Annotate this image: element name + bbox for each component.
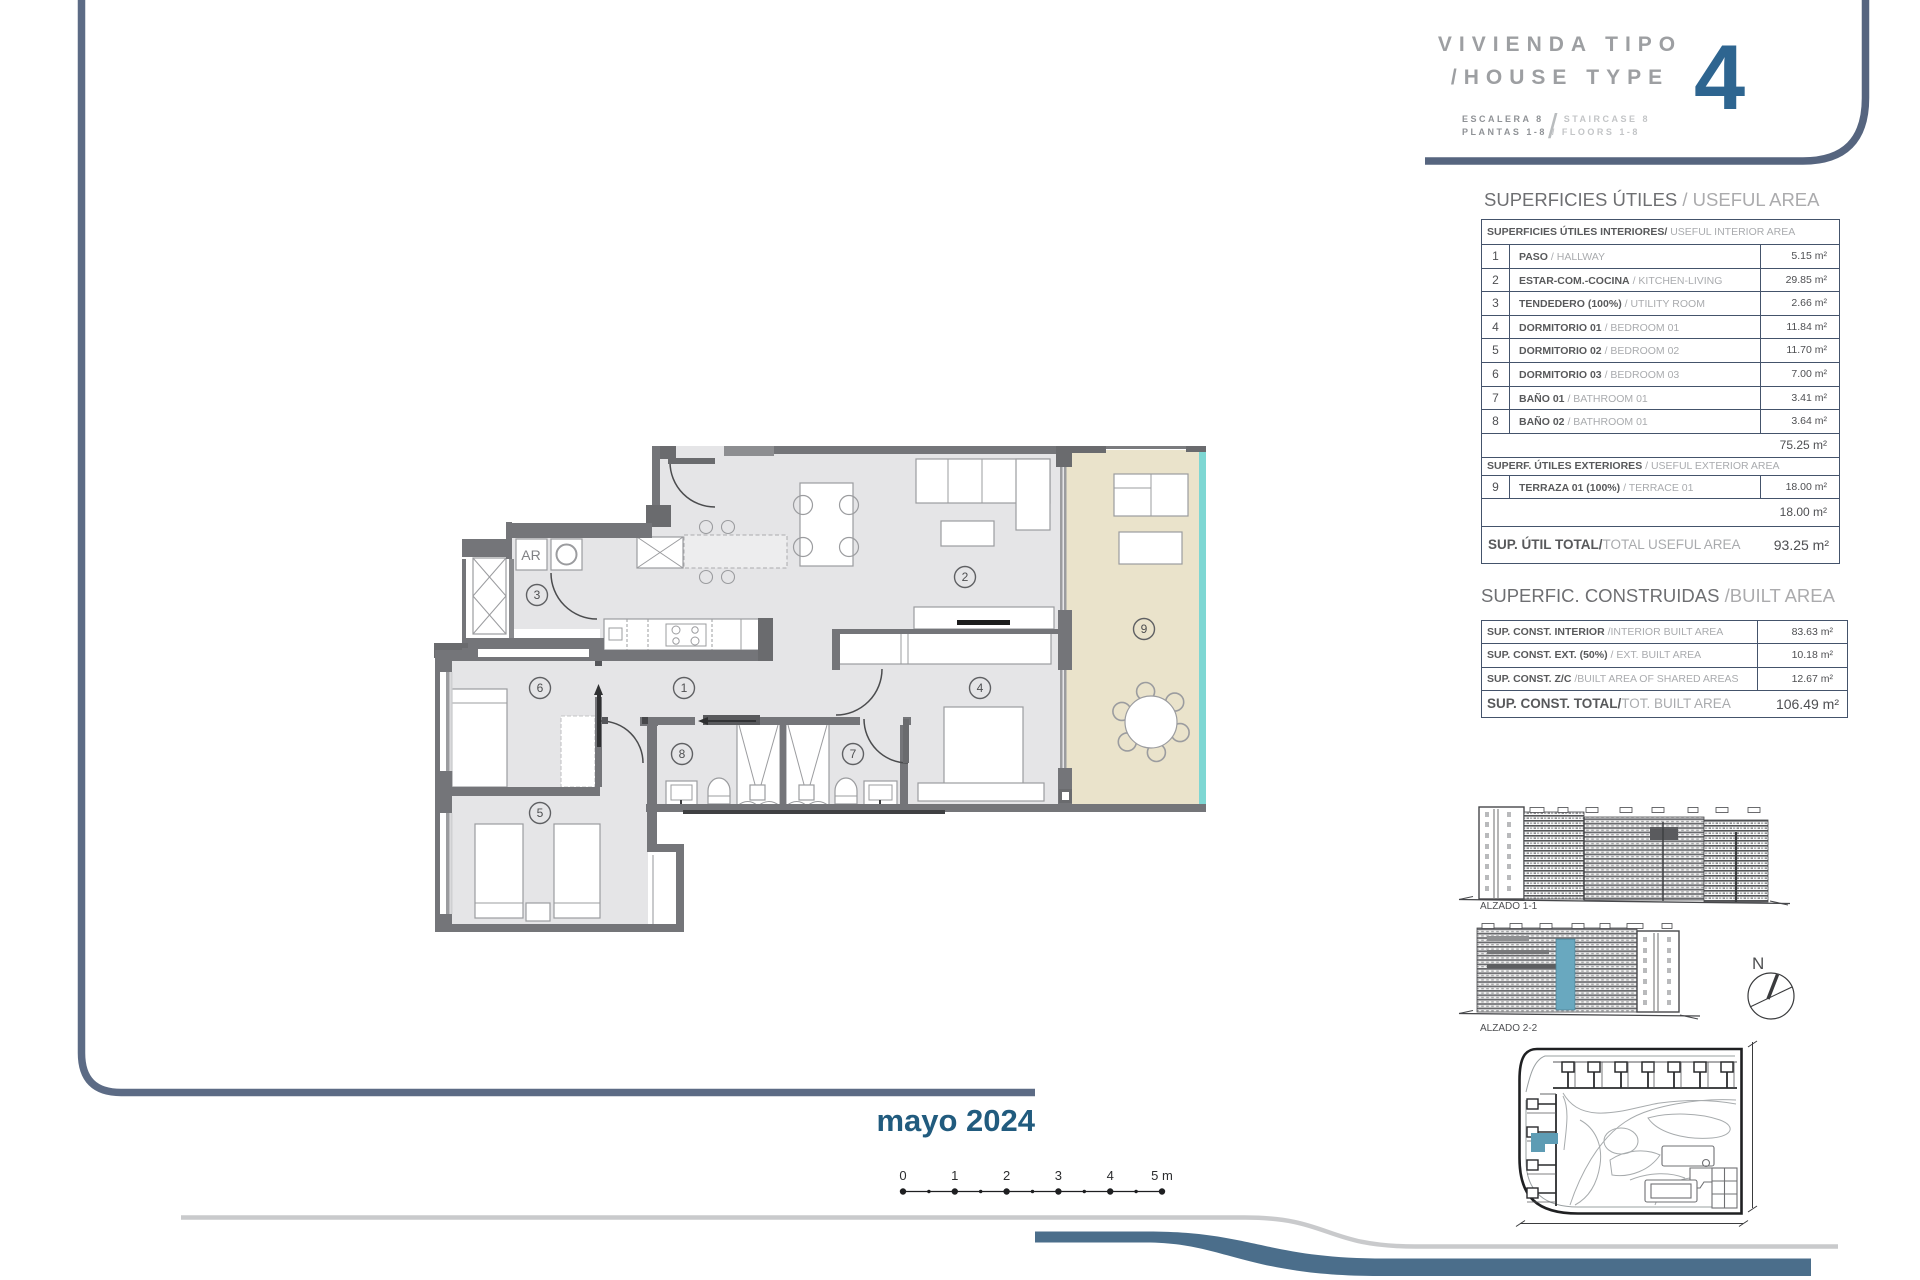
svg-text:3: 3: [1055, 1168, 1062, 1183]
svg-text:4: 4: [1107, 1168, 1114, 1183]
svg-text:4: 4: [977, 681, 984, 695]
svg-text:0: 0: [899, 1168, 906, 1183]
svg-text:N: N: [1752, 954, 1764, 973]
svg-text:9: 9: [1141, 622, 1148, 636]
svg-text:2: 2: [962, 570, 969, 584]
svg-text:2: 2: [1003, 1168, 1010, 1183]
svg-text:1: 1: [681, 681, 688, 695]
svg-text:8: 8: [679, 747, 686, 761]
svg-text:1: 1: [951, 1168, 958, 1183]
svg-text:5: 5: [537, 806, 544, 820]
svg-text:3: 3: [534, 588, 541, 602]
svg-text:AR: AR: [521, 547, 540, 563]
svg-text:7: 7: [850, 747, 857, 761]
svg-text:5 m: 5 m: [1151, 1168, 1173, 1183]
svg-text:6: 6: [537, 681, 544, 695]
